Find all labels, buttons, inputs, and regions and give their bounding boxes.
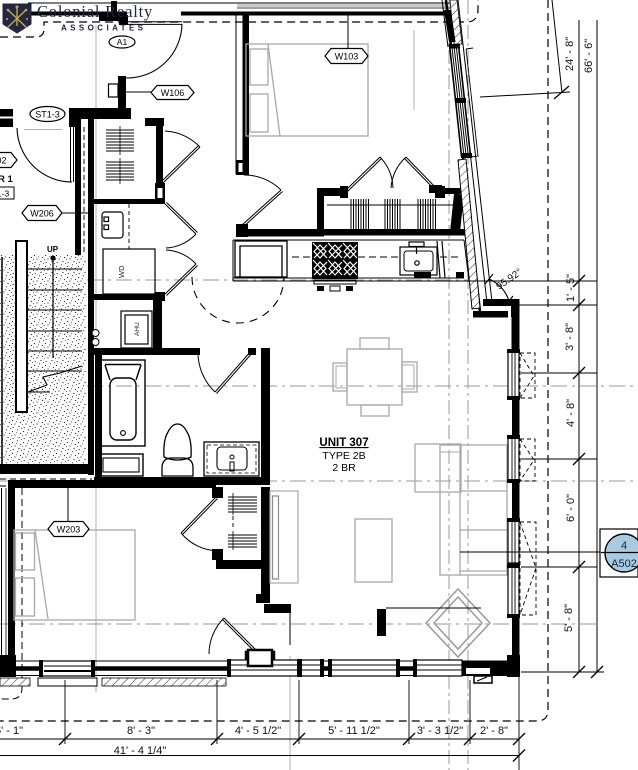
svg-text:1-3: 1-3 — [0, 189, 10, 199]
svg-text:AHU: AHU — [134, 322, 141, 336]
svg-text:R 1: R 1 — [0, 174, 14, 185]
svg-text:5' - 11 1/2": 5' - 11 1/2" — [328, 725, 380, 737]
svg-text:3' - 3 1/2": 3' - 3 1/2" — [417, 725, 463, 737]
svg-text:66' - 6": 66' - 6" — [583, 39, 595, 73]
svg-text:Colonial Realty: Colonial Realty — [37, 2, 153, 21]
svg-text:4' - 5 1/2": 4' - 5 1/2" — [235, 725, 281, 737]
svg-text:6' - 1": 6' - 1" — [0, 725, 23, 737]
svg-text:3' - 8": 3' - 8" — [564, 323, 576, 351]
svg-text:202: 202 — [0, 156, 7, 166]
svg-text:W103: W103 — [335, 52, 359, 62]
svg-text:4' - 8": 4' - 8" — [565, 399, 577, 427]
svg-text:W106: W106 — [161, 88, 185, 98]
svg-text:A1: A1 — [117, 37, 128, 47]
svg-text:41' - 4 1/4": 41' - 4 1/4" — [114, 745, 167, 757]
svg-text:UP: UP — [47, 245, 59, 254]
svg-text:UNIT 307: UNIT 307 — [319, 437, 368, 449]
svg-text:TYPE 2B: TYPE 2B — [322, 450, 365, 462]
svg-text:4: 4 — [621, 540, 627, 552]
svg-text:A502: A502 — [611, 558, 637, 570]
svg-text:WD: WD — [117, 265, 126, 278]
svg-text:W206: W206 — [30, 209, 54, 219]
svg-text:ASSOCIATES: ASSOCIATES — [61, 24, 146, 33]
svg-text:W203: W203 — [57, 525, 81, 535]
svg-text:ST1-3: ST1-3 — [35, 110, 60, 120]
svg-text:2 BR: 2 BR — [332, 462, 356, 474]
svg-text:1' - 5": 1' - 5" — [565, 274, 577, 302]
svg-text:8' - 3": 8' - 3" — [127, 725, 155, 737]
svg-text:24' - 8": 24' - 8" — [564, 37, 576, 71]
svg-text:2' - 8": 2' - 8" — [480, 725, 508, 737]
svg-text:5' - 8": 5' - 8" — [563, 604, 575, 632]
svg-text:6' - 0": 6' - 0" — [565, 494, 577, 522]
